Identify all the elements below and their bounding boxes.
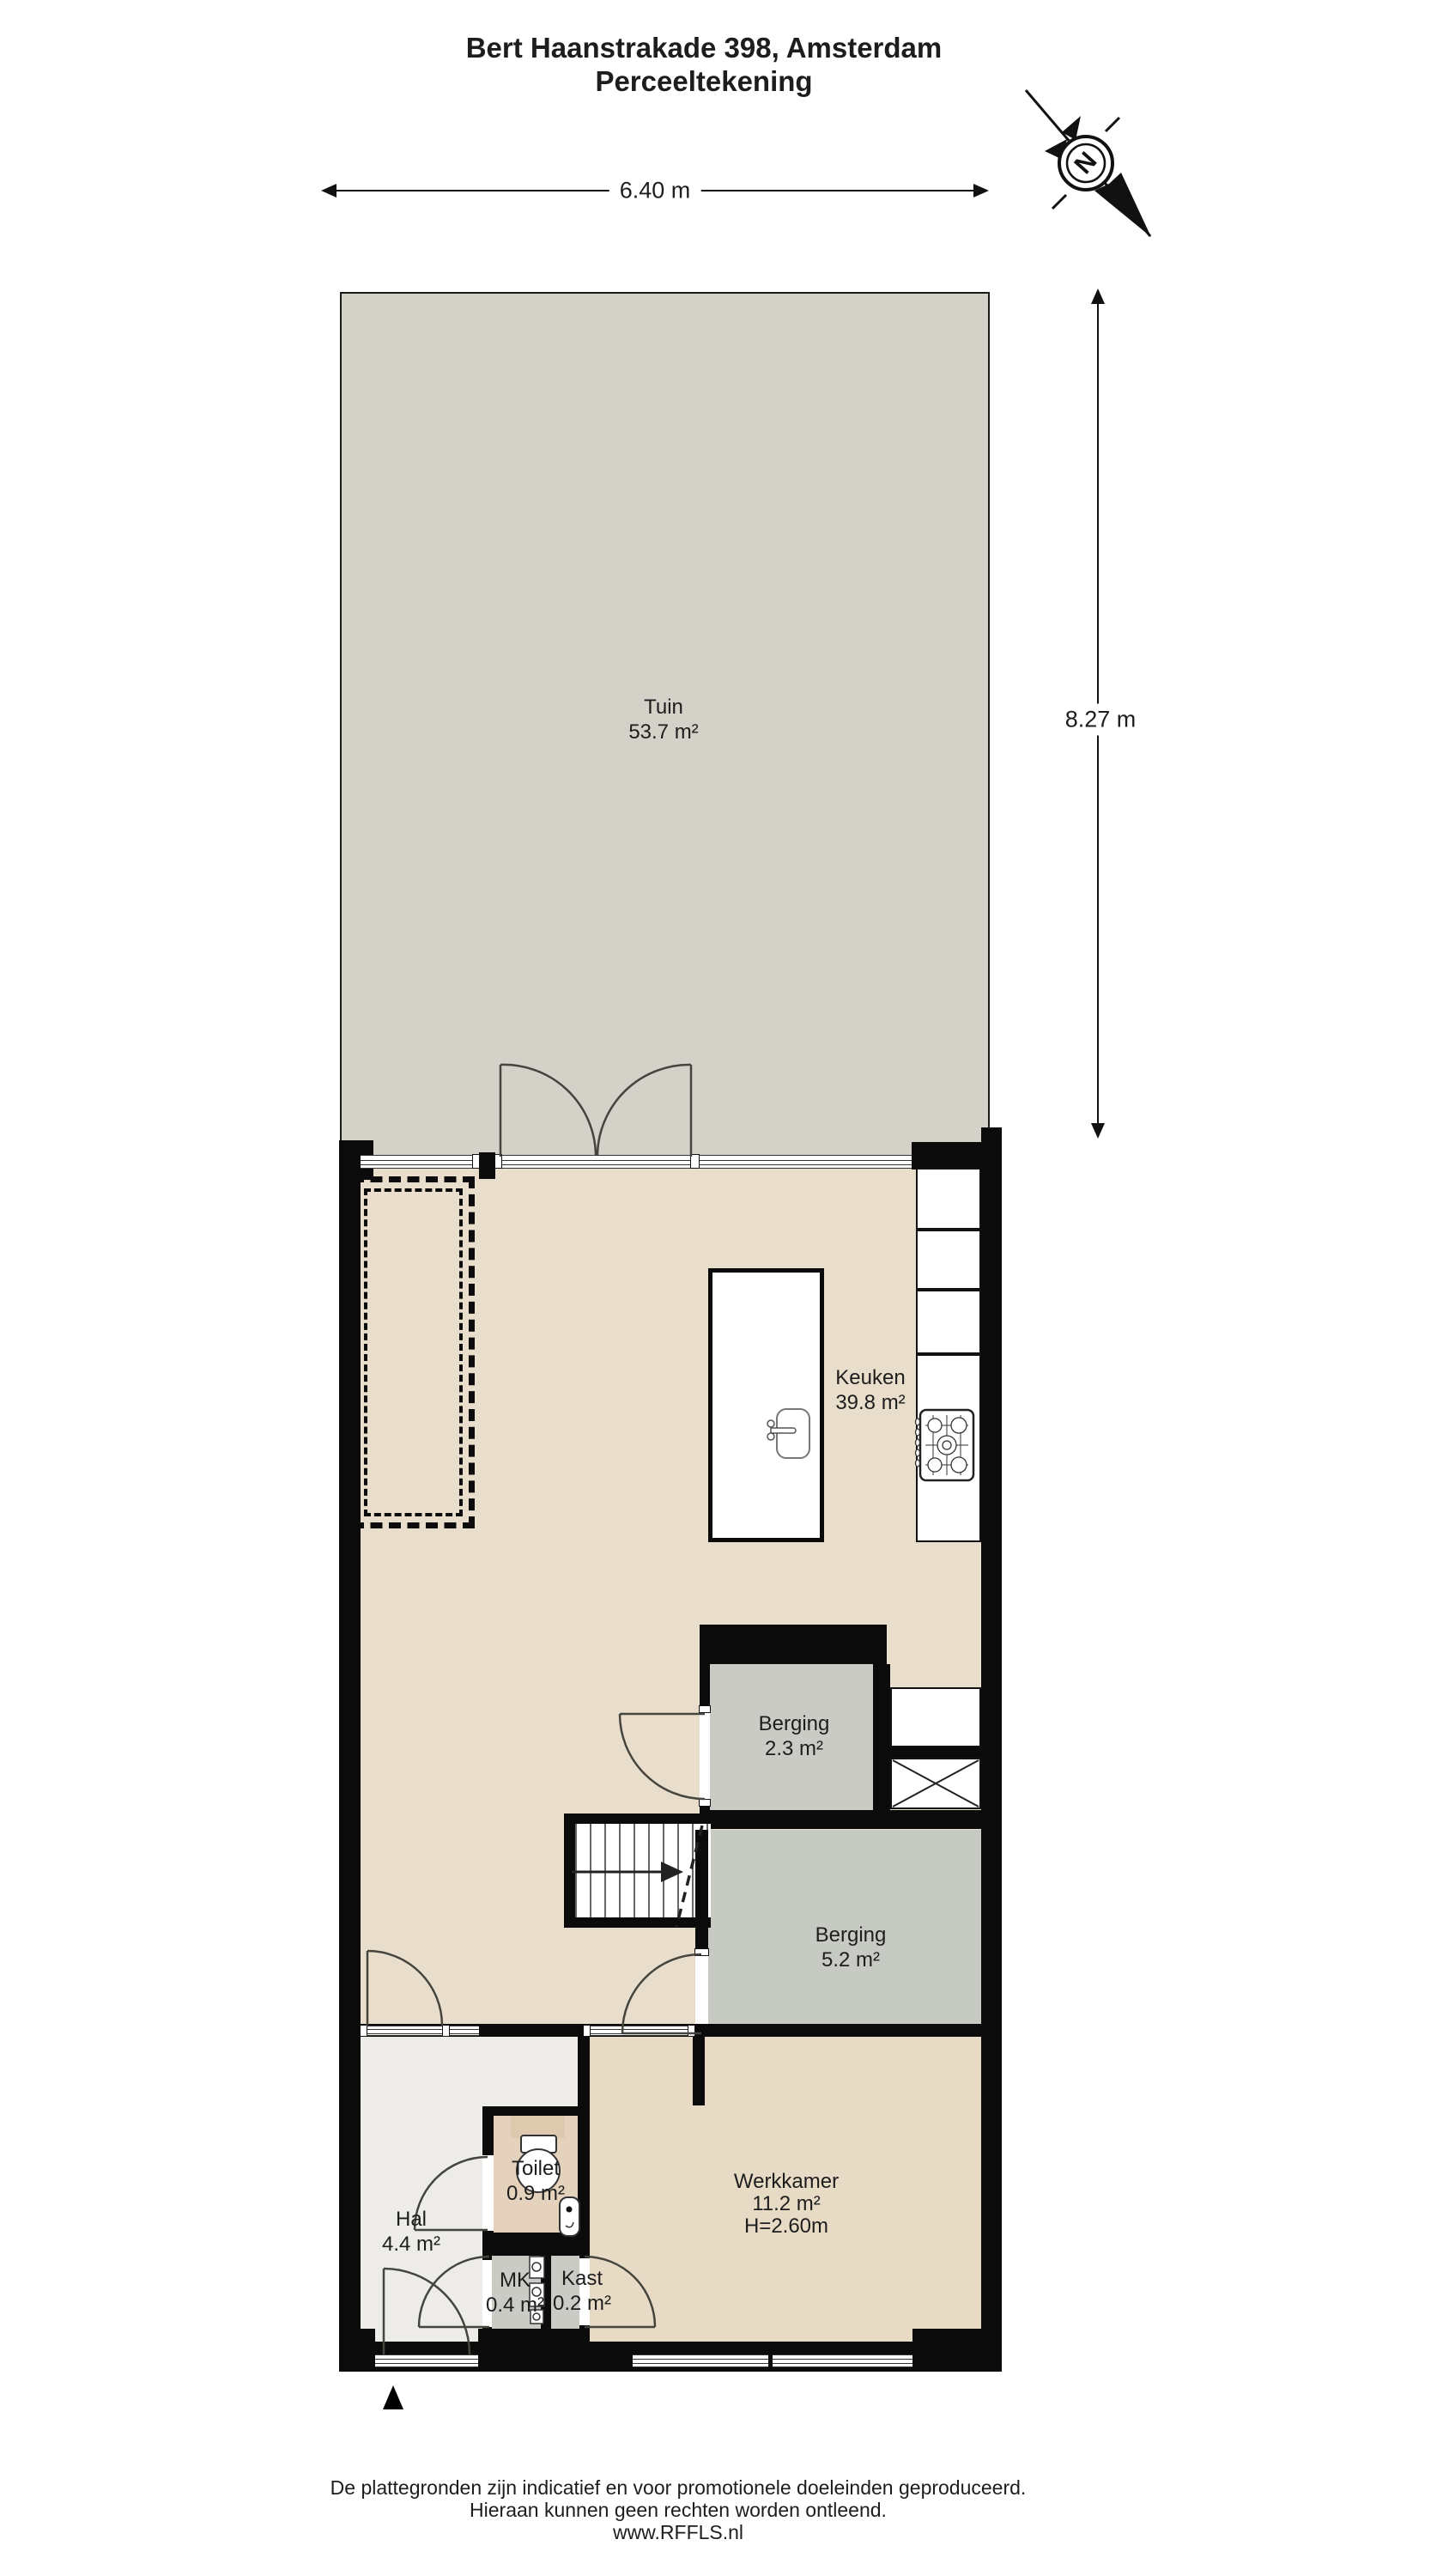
window-jamb (472, 1154, 480, 1169)
room-label-berging-klein: Berging 2.3 m² (759, 1711, 830, 1761)
overhang-dashed-outline-inner (364, 1188, 463, 1516)
exterior-wall-right-top-corner (912, 1142, 1002, 1170)
mk-kast-wall-top (482, 2237, 590, 2256)
door-jamb (583, 2025, 591, 2037)
workroom-window-mullion (768, 2354, 773, 2367)
room-name: Berging (759, 1711, 830, 1736)
stairs-wall-bottom (564, 1917, 711, 1928)
north-compass-icon: N (1013, 77, 1167, 249)
stairs-wall-top (564, 1814, 711, 1824)
room-name: Toilet (506, 2156, 565, 2181)
garden-facade-mullion (479, 1152, 495, 1179)
storage-small-wall-top (700, 1625, 887, 1664)
room-label-hal: Hal 4.4 m² (382, 2207, 440, 2257)
room-area: 39.8 m² (835, 1390, 905, 1415)
door-jamb (442, 2025, 450, 2037)
door-jamb (360, 2025, 367, 2037)
room-area: 0.9 m² (506, 2181, 565, 2206)
door-jamb (694, 1948, 709, 1956)
room-label-werkkamer: Werkkamer 11.2 m² H=2.60m (734, 2171, 839, 2238)
front-door-threshold (375, 2354, 478, 2367)
hall-workroom-wall (578, 2037, 590, 2243)
workroom-wall-stub (693, 2037, 705, 2105)
room-area: 2.3 m² (759, 1736, 830, 1761)
room-area: 0.4 m² (486, 2293, 544, 2318)
website-url: www.RFFLS.nl (0, 2521, 1356, 2543)
room-label-keuken: Keuken 39.8 m² (835, 1365, 905, 1415)
shaft-box (890, 1758, 981, 1809)
hall-sidelight-window (450, 2026, 479, 2036)
room-name: MK (486, 2268, 544, 2293)
room-ceiling-height: H=2.60m (734, 2215, 839, 2238)
stairs-wall-left (564, 1814, 575, 1928)
disclaimer-line: Hieraan kunnen geen rechten worden ontle… (0, 2499, 1356, 2521)
room-name: Kast (553, 2266, 611, 2291)
door-jamb (699, 1799, 711, 1807)
workroom-window (633, 2354, 912, 2367)
garden-facade-window-right (700, 1155, 912, 1169)
kitchen-cabinet (916, 1168, 981, 1230)
exterior-wall-bottom-thick-center (478, 2329, 590, 2372)
room-area: 5.2 m² (815, 1947, 887, 1972)
room-label-kast: Kast 0.2 m² (553, 2266, 611, 2316)
kitchen-counter-stove-section (916, 1354, 981, 1542)
window-jamb (690, 1154, 700, 1169)
drawing-type-line: Perceeltekening (0, 64, 1408, 98)
disclaimer-line: De plattegronden zijn indicatief en voor… (0, 2476, 1356, 2499)
dimension-width-label: 6.40 m (609, 175, 701, 207)
room-name: Werkkamer (734, 2171, 839, 2193)
closet-shaft-divider (890, 1747, 981, 1758)
door-jamb (688, 2025, 695, 2037)
window-jamb (494, 1154, 502, 1169)
room-label-toilet: Toilet 0.9 m² (506, 2156, 565, 2206)
dimension-height-label: 8.27 m (1055, 704, 1147, 736)
staircase (575, 1824, 711, 1917)
exterior-wall-left (339, 1140, 361, 2372)
exterior-wall-right (981, 1127, 1002, 2372)
hall-door-threshold (367, 2026, 443, 2036)
hall-floor-upper (361, 2037, 578, 2106)
garden-door-threshold (502, 1155, 691, 1169)
page-title: Bert Haanstrakade 398, Amsterdam Perceel… (0, 31, 1408, 98)
shaft-left-wall (876, 1664, 890, 1829)
toilet-cistern-shelf (511, 2115, 565, 2138)
address-line: Bert Haanstrakade 398, Amsterdam (0, 31, 1408, 64)
storage-small-wall-bottom (700, 1810, 981, 1829)
garden-facade-window-left (361, 1155, 479, 1169)
disclaimer: De plattegronden zijn indicatief en voor… (0, 2476, 1356, 2543)
workroom-glass-partition (590, 2026, 695, 2036)
room-name: Hal (382, 2207, 440, 2232)
room-label-berging-groot: Berging 5.2 m² (815, 1923, 887, 1972)
dimension-arrow-up (1091, 289, 1105, 304)
room-area: 4.4 m² (382, 2232, 440, 2257)
room-area: 11.2 m² (734, 2193, 839, 2215)
toilet-wall-top (482, 2106, 590, 2116)
kitchen-island (708, 1268, 824, 1542)
toilet-door-opening (482, 2155, 494, 2231)
room-name: Keuken (835, 1365, 905, 1390)
dimension-arrow-down (1091, 1123, 1105, 1139)
room-name: Berging (815, 1923, 887, 1947)
room-area: 53.7 m² (628, 720, 698, 744)
room-name: Tuin (628, 695, 698, 720)
room-label-mk: MK 0.4 m² (486, 2268, 544, 2318)
kitchen-cabinet (916, 1230, 981, 1290)
dimension-arrow-left (321, 184, 336, 197)
dimension-arrow-right (973, 184, 989, 197)
storage-small-door-opening (700, 1711, 710, 1801)
room-area: 0.2 m² (553, 2291, 611, 2316)
room-label-tuin: Tuin 53.7 m² (628, 695, 698, 744)
floorplan-page: Bert Haanstrakade 398, Amsterdam Perceel… (0, 0, 1449, 2576)
built-in-closet (890, 1687, 981, 1747)
exterior-wall-bottom-right-block (912, 2329, 1002, 2372)
storage-large-door-opening (695, 1954, 708, 2024)
door-jamb (699, 1705, 711, 1713)
compass-north-letter: N (1069, 147, 1102, 179)
kitchen-cabinet (916, 1290, 981, 1354)
entrance-marker-icon (383, 2385, 403, 2409)
